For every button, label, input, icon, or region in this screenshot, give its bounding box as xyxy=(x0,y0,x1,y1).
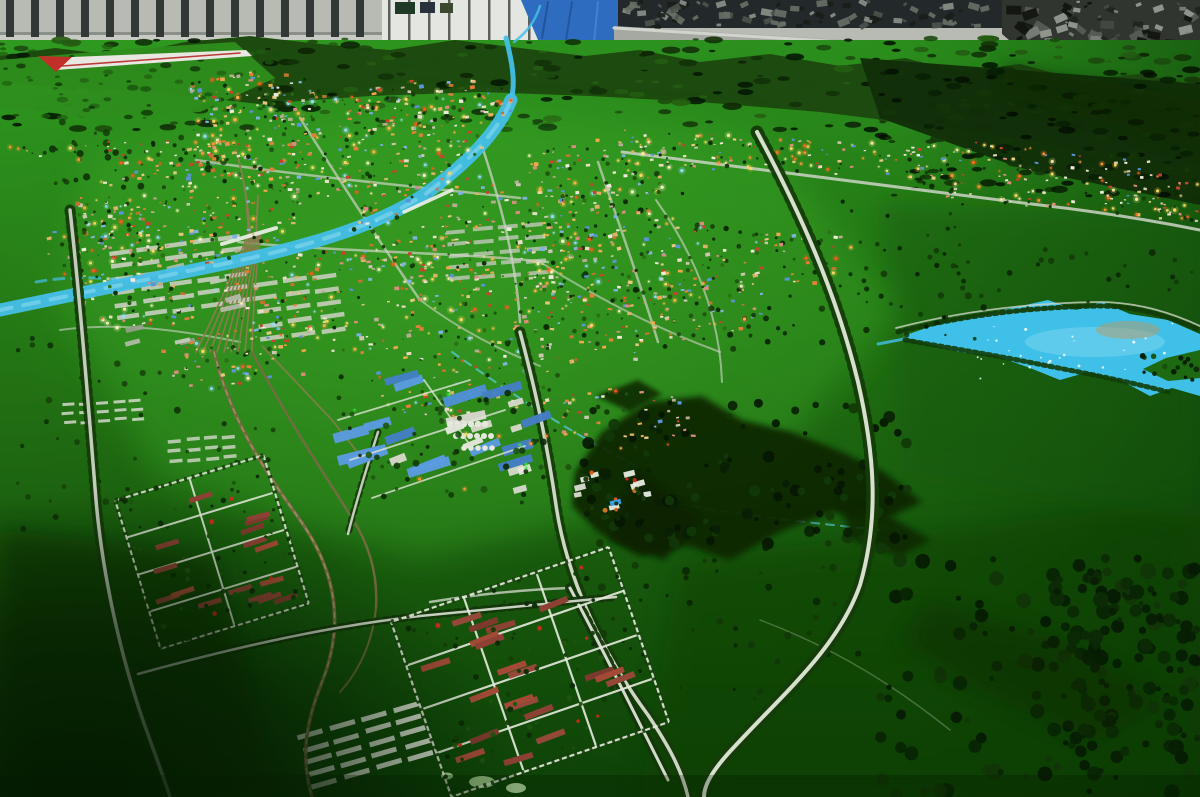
wall-poster-3 xyxy=(440,3,453,13)
lake-shallow xyxy=(1096,321,1160,339)
city-model-scene xyxy=(0,0,1200,797)
wall-poster-2 xyxy=(420,2,435,13)
scale-model-photo xyxy=(0,0,1200,797)
wall-poster-1 xyxy=(395,2,415,14)
wall-pillars xyxy=(6,0,364,37)
photo-viewport xyxy=(0,0,1200,797)
